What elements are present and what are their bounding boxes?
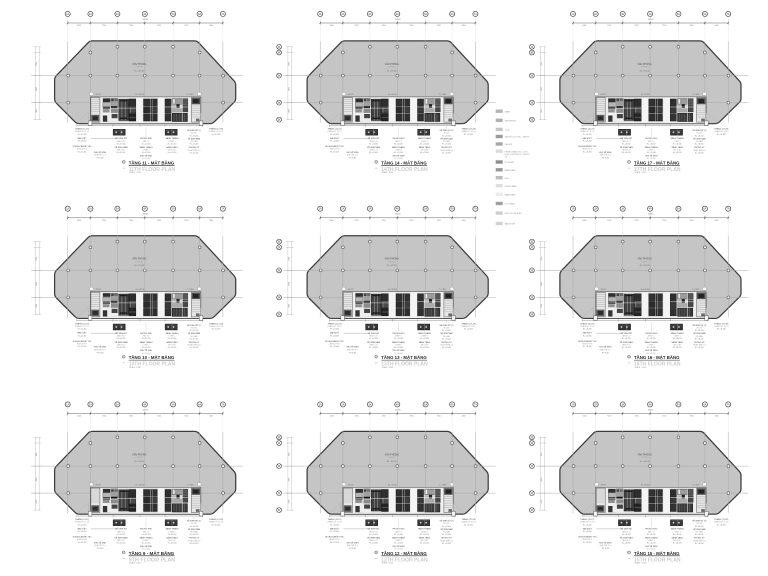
svg-text:TẦNG 9-17: TẦNG 9-17 [622,530,631,533]
svg-text:7200: 7200 [354,25,358,27]
svg-text:PV TL4N: PV TL4N [602,352,610,354]
svg-text:06: 06 [375,162,377,164]
svg-text:SẢNH THANG: SẢNH THANG [165,332,179,335]
svg-text:5A: 5A [677,208,680,211]
svg-text:ANGICOP W: ANGICOP W [330,148,340,151]
svg-text:EL +41.450: EL +41.450 [583,151,592,153]
svg-text:01: 01 [123,552,125,554]
svg-text:EL +41.050: EL +41.050 [190,526,199,528]
svg-text:1A: 1A [66,208,69,211]
svg-text:EL +41.450: EL +41.450 [717,329,726,331]
svg-text:7200: 7200 [437,25,441,27]
svg-text:(THANG KT 15-17): (THANG KT 15-17) [209,521,224,524]
svg-text:5400: 5400 [715,220,719,222]
svg-text:2A: 2A [89,13,92,16]
svg-text:6A: 6A [703,403,706,406]
svg-text:EL +41.450: EL +41.450 [78,329,87,331]
svg-text:(THANG KT 15-17): (THANG KT 15-17) [714,325,729,328]
svg-text:5400: 5400 [209,25,213,27]
svg-text:VỆ SINH NAM: VỆ SINH NAM [114,537,127,540]
svg-text:5A: 5A [424,208,427,211]
svg-text:ANGICOP W: ANGICOP W [330,538,340,541]
svg-text:THANG (15-27): THANG (15-27) [75,322,89,325]
svg-text:9000: 9000 [36,87,38,91]
svg-text:THUẬT ĐIỆN 4-5: THUẬT ĐIỆN 4-5 [440,539,453,542]
svg-text:35 4750: 35 4750 [390,124,396,126]
svg-text:EL +41.450: EL +41.450 [212,134,221,136]
svg-text:TẦNG 9-17: TẦNG 9-17 [622,140,631,143]
svg-text:SẢNH THANG: SẢNH THANG [671,137,685,140]
svg-text:+39.475: +39.475 [347,94,353,96]
svg-text:EL +41.050: EL +41.050 [369,543,378,545]
svg-text:EL +41.050: EL +41.050 [394,338,403,340]
svg-text:EL +41.450: EL +41.450 [78,134,87,136]
svg-text:03: 03 [123,162,125,164]
svg-text:EL +41.050: EL +41.050 [190,543,199,545]
svg-text:PHÒNG KỸ: PHÒNG KỸ [441,341,452,344]
svg-text:SCALE : 1/100: SCALE : 1/100 [129,171,140,174]
svg-text:7200: 7200 [157,220,161,222]
svg-text:MÁY T.2: MÁY T.2 [395,335,401,338]
svg-text:7200: 7200 [409,416,413,418]
svg-text:5400: 5400 [77,220,81,222]
svg-text:2A: 2A [341,403,344,406]
svg-text:09: 09 [628,162,630,164]
svg-text:T +7 SEC: T +7 SEC [439,289,447,291]
svg-text:7200: 7200 [607,25,611,27]
svg-text:KHU VỰC VỆ SINH: KHU VỰC VỆ SINH [505,212,522,215]
svg-text:4A: 4A [649,208,652,211]
svg-text:7000: 7000 [288,257,290,261]
svg-text:EL +41.050: EL +41.050 [369,347,378,349]
svg-text:18 KHU/CANXET TEC: 18 KHU/CANXET TEC [325,145,345,148]
svg-text:5A: 5A [677,403,680,406]
svg-text:3A: 3A [116,403,119,406]
svg-text:( OFFICE ): ( OFFICE ) [641,262,649,264]
svg-text:6A: 6A [451,208,454,211]
svg-text:EL +41.450: EL +41.450 [717,134,726,136]
svg-text:EL +41.050: EL +41.050 [622,152,631,154]
svg-text:9000: 9000 [541,282,543,286]
svg-text:THANG (17-28): THANG (17-28) [714,518,728,521]
svg-text:7200: 7200 [157,25,161,27]
svg-text:5400: 5400 [715,25,719,27]
svg-text:7200: 7200 [129,416,133,418]
svg-text:5400: 5400 [77,416,81,418]
svg-text:EL +41.050: EL +41.050 [190,534,199,536]
svg-text:( OFFICE ): ( OFFICE ) [388,67,396,69]
svg-text:05: 05 [375,356,377,358]
svg-text:7A: 7A [727,13,730,16]
svg-text:7200: 7200 [382,220,386,222]
svg-text:56000: 56000 [648,409,654,411]
svg-text:MÁY T.2: MÁY T.2 [648,335,654,338]
svg-text:VỆ SINH NỮ: VỆ SINH NỮ [368,528,380,531]
svg-text:1A: 1A [572,13,575,16]
svg-text:NHÀ TRẺ TL 4: NHÀ TRẺ TL 4 [347,544,358,547]
svg-text:THANG (17-28): THANG (17-28) [209,518,223,521]
svg-text:EL +41.450: EL +41.450 [583,542,592,544]
svg-text:1A: 1A [572,208,575,211]
svg-text:7200: 7200 [129,220,133,222]
svg-text:04: 04 [375,552,377,554]
svg-text:MÁI SLÉT: MÁI SLÉT [330,527,340,530]
svg-text:EL +41.450: EL +41.450 [464,329,473,331]
svg-text:7200: 7200 [184,25,188,27]
svg-text:EL +41.450: EL +41.450 [330,134,339,136]
svg-text:KHO: KHO [505,178,510,180]
svg-text:7A: 7A [474,13,477,16]
svg-text:EL +41.050: EL +41.050 [394,534,403,536]
svg-text:KHU VỆ SINH: KHU VỆ SINH [94,541,107,544]
svg-text:MÁI SLÉT: MÁI SLÉT [77,527,87,530]
svg-text:EL +41.050: EL +41.050 [420,152,429,154]
svg-text:7A: 7A [221,403,224,406]
svg-text:35 4750: 35 4750 [642,318,648,320]
svg-text:TẦNG 13 - MẶT BẰNG: TẦNG 13 - MẶT BẰNG [381,353,427,360]
svg-text:EL +41.050: EL +41.050 [117,543,126,545]
svg-text:EL +41.050: EL +41.050 [142,347,151,349]
svg-text:SẢNH TẦNG: SẢNH TẦNG [166,146,178,149]
svg-text:EL +41.050: EL +41.050 [695,135,704,137]
svg-text:35 4750: 35 4750 [137,514,143,516]
svg-text:NHÀ TRẺ TL 4: NHÀ TRẺ TL 4 [600,544,611,547]
svg-text:TẦNG 10 - MẶT BẰNG: TẦNG 10 - MẶT BẰNG [129,353,175,360]
svg-text:PHÒNG KHU: PHÒNG KHU [392,332,405,335]
svg-text:1A: 1A [319,208,322,211]
svg-text:EL +44.450: EL +44.450 [583,531,592,533]
svg-text:EL +41.050: EL +41.050 [117,143,126,145]
svg-text:EL +41.450: EL +41.450 [330,329,339,331]
svg-text:7000: 7000 [288,453,290,457]
svg-text:ANGICOP W: ANGICOP W [77,343,87,346]
svg-text:5400: 5400 [582,416,586,418]
svg-text:(THANG KT 15-17): (THANG KT 15-17) [461,521,476,524]
svg-text:7200: 7200 [409,220,413,222]
svg-text:EL +41.050: EL +41.050 [142,534,151,536]
svg-text:9000: 9000 [36,282,38,286]
svg-text:7000: 7000 [36,62,38,66]
svg-text:KHÔNG GIAN CHỜ - CHỖ: KHÔNG GIAN CHỜ - CHỖ [505,150,528,153]
svg-text:SCALE : 1/100: SCALE : 1/100 [635,366,646,369]
svg-text:SẢNH THANG: SẢNH THANG [645,146,659,149]
svg-text:KHU VỆ SINH: KHU VỆ SINH [599,541,612,544]
svg-text:PHÒNG KHU: PHÒNG KHU [392,137,405,140]
svg-text:PV TL4N: PV TL4N [97,352,105,354]
svg-text:KHU VỆ SINH: KHU VỆ SINH [346,541,359,544]
svg-text:EL +41.050: EL +41.050 [673,347,682,349]
svg-text:TẦNG 9-17: TẦNG 9-17 [117,539,126,542]
svg-text:EL +41.450: EL +41.450 [330,542,339,544]
svg-text:EL +41.050: EL +41.050 [168,152,177,154]
svg-text:THANG (15-27): THANG (15-27) [580,518,594,521]
svg-text:VỆ SINH NAM: VỆ SINH NAM [693,332,706,335]
svg-text:18 KHU/CANXET TEC: 18 KHU/CANXET TEC [72,536,92,539]
svg-text:NHÀ TRẺ TL 4: NHÀ TRẺ TL 4 [94,154,105,157]
svg-text:EL +39.100: EL +39.100 [388,485,397,487]
svg-text:2A: 2A [594,13,597,16]
svg-text:( OFFICE ): ( OFFICE ) [135,67,143,69]
svg-text:WC.NAM: WC.NAM [443,140,451,143]
svg-text:EL +41.450: EL +41.450 [78,151,87,153]
svg-text:EL +39.100: EL +39.100 [387,265,397,267]
svg-text:2A: 2A [341,208,344,211]
svg-text:3A: 3A [621,403,624,406]
svg-text:THANG (17-28): THANG (17-28) [461,518,475,521]
svg-text:EL +41.050: EL +41.050 [420,543,429,545]
svg-text:SẢNH THANG: SẢNH THANG [165,137,179,140]
svg-text:56000: 56000 [648,19,654,21]
svg-text:7000: 7000 [288,62,290,66]
svg-text:6A: 6A [198,208,201,211]
svg-text:(THANG KT 15-17): (THANG KT 15-17) [209,130,224,133]
svg-text:EL +41.450: EL +41.450 [78,542,87,544]
svg-text:EL +41.450: EL +41.450 [212,524,221,526]
svg-text:NHÀ TRẺ TL 4: NHÀ TRẺ TL 4 [600,154,611,157]
svg-text:EL +41.450: EL +41.450 [330,151,339,153]
svg-text:MÁY T.2: MÁY T.2 [395,140,401,143]
svg-text:TẦNG 15 - MẶT BẰNG: TẦNG 15 - MẶT BẰNG [634,549,680,556]
svg-text:PHÒNG KHU: PHÒNG KHU [140,332,153,335]
svg-text:KHU VỆ SINH: KHU VỆ SINH [645,545,658,548]
svg-text:7200: 7200 [607,220,611,222]
svg-text:ANGICOP W: ANGICOP W [582,148,592,151]
svg-text:T +7 SEC: T +7 SEC [692,289,700,291]
svg-text:VỆ SINH NỮ (T): VỆ SINH NỮ (T) [692,129,706,132]
svg-text:SẢNH TẦNG: SẢNH TẦNG [671,341,683,344]
svg-text:5A: 5A [677,13,680,16]
svg-text:1A: 1A [319,403,322,406]
svg-text:3A: 3A [621,13,624,16]
svg-text:9000: 9000 [288,87,290,91]
svg-text:EL +41.450: EL +41.450 [330,524,339,526]
svg-text:VỆ SINH NAM: VỆ SINH NAM [188,528,201,531]
svg-text:TẦNG 16 - MẶT BẰNG: TẦNG 16 - MẶT BẰNG [634,353,680,360]
svg-text:MÁI SLÉT: MÁI SLÉT [77,137,87,140]
svg-text:MÁY T.2: MÁY T.2 [395,530,401,533]
svg-text:KHU VỆ SINH: KHU VỆ SINH [392,154,405,157]
svg-text:EL +41.050: EL +41.050 [369,534,378,536]
svg-text:EL +41.050: EL +41.050 [695,347,704,349]
svg-text:EL +41.050: EL +41.050 [442,543,451,545]
svg-text:T +7 SEC: T +7 SEC [692,94,700,96]
svg-text:THANG (15-27): THANG (15-27) [75,518,89,521]
svg-text:SẢNH: SẢNH [505,110,511,113]
svg-text:KHU VỆ SINH: KHU VỆ SINH [140,545,153,548]
svg-text:PHÒNG KHU: PHÒNG KHU [645,137,658,140]
svg-text:SCALE : 1/100: SCALE : 1/100 [129,366,140,369]
svg-text:VỆ SINH NỮ (T): VỆ SINH NỮ (T) [439,129,453,132]
svg-text:EL +44.450: EL +44.450 [78,531,87,533]
svg-text:1A: 1A [66,403,69,406]
svg-text:HÀNH LANG: HÀNH LANG [505,169,517,172]
svg-text:7A: 7A [221,13,224,16]
svg-text:EL +41.050: EL +41.050 [673,338,682,340]
svg-text:( OFFICE ): ( OFFICE ) [641,457,649,459]
svg-text:EL +41.050: EL +41.050 [168,543,177,545]
svg-text:3A: 3A [368,208,371,211]
svg-text:7200: 7200 [102,220,106,222]
svg-text:SẢNH THANG: SẢNH THANG [418,137,432,140]
svg-text:7200: 7200 [382,25,386,27]
svg-text:35 4750: 35 4750 [642,514,648,516]
svg-text:HÀNH LANG: HÀNH LANG [505,193,517,196]
svg-text:EL +39.100: EL +39.100 [641,94,650,96]
svg-text:TẦNG 9-17: TẦNG 9-17 [622,539,631,542]
svg-text:PHÒNG KỸ: PHÒNG KỸ [694,341,705,344]
svg-text:EL +44.450: EL +44.450 [583,141,592,143]
svg-text:SCALE : 1/100: SCALE : 1/100 [382,562,393,565]
svg-text:EL +41.050: EL +41.050 [394,543,403,545]
svg-text:EL +41.050: EL +41.050 [394,152,403,154]
svg-text:VỆ SINH NỮ: VỆ SINH NỮ [115,137,127,140]
svg-text:5400: 5400 [77,25,81,27]
svg-text:TẦNG 9-17: TẦNG 9-17 [117,149,126,152]
svg-text:SCALE : 1/100: SCALE : 1/100 [129,562,140,565]
svg-text:+39.475: +39.475 [95,485,101,487]
svg-text:VỆ SINH NAM: VỆ SINH NAM [367,146,380,149]
svg-text:VỆ SINH NAM: VỆ SINH NAM [114,341,127,344]
svg-text:7000: 7000 [288,109,290,113]
svg-text:TẦNG 9-17: TẦNG 9-17 [622,343,631,346]
svg-text:VỆ SINH NỮ (T): VỆ SINH NỮ (T) [439,324,453,327]
svg-text:EL +44.450: EL +44.450 [330,531,339,533]
svg-text:EL +39.100: EL +39.100 [387,70,397,72]
svg-text:EL +41.050: EL +41.050 [168,347,177,349]
svg-text:NHÀ TRẺ TL 4: NHÀ TRẺ TL 4 [94,349,105,352]
svg-text:35 4750: 35 4750 [390,318,396,320]
svg-text:TẦNG 9-17: TẦNG 9-17 [117,530,126,533]
svg-text:9000: 9000 [288,282,290,286]
svg-text:SCALE : 1/100: SCALE : 1/100 [635,562,646,565]
svg-text:VĂN PHÒNG: VĂN PHÒNG [132,453,147,456]
svg-text:VĂN PHÒNG: VĂN PHÒNG [385,453,400,456]
svg-text:EL +39.100: EL +39.100 [640,461,650,463]
svg-text:EL +41.050: EL +41.050 [647,338,656,340]
svg-text:EL +41.450: EL +41.450 [583,346,592,348]
svg-text:4A: 4A [143,13,146,16]
svg-text:5400: 5400 [209,416,213,418]
svg-text:THANG (15-27): THANG (15-27) [580,322,594,325]
svg-text:VỆ SINH NAM: VỆ SINH NAM [367,537,380,540]
svg-text:7200: 7200 [662,25,666,27]
svg-text:2A: 2A [89,403,92,406]
svg-text:5400: 5400 [462,220,466,222]
svg-text:EL +41.050: EL +41.050 [394,143,403,145]
svg-text:4A: 4A [143,208,146,211]
svg-text:THANG (17-28): THANG (17-28) [209,128,223,131]
svg-text:( OFFICE ): ( OFFICE ) [388,457,396,459]
svg-text:EL +41.050: EL +41.050 [622,543,631,545]
svg-text:7200: 7200 [662,416,666,418]
svg-text:WC.NAM: WC.NAM [696,140,704,143]
svg-text:5400: 5400 [462,416,466,418]
svg-text:18 KHU/CANXET TEC: 18 KHU/CANXET TEC [72,145,92,148]
svg-text:5A: 5A [172,208,175,211]
svg-text:SẢNH THANG: SẢNH THANG [418,528,432,531]
svg-text:56000: 56000 [395,19,401,21]
svg-text:TẦNG 9-17: TẦNG 9-17 [369,343,378,346]
svg-text:7000: 7000 [541,500,543,504]
svg-text:EL +41.050: EL +41.050 [622,534,631,536]
svg-text:EL +41.050: EL +41.050 [647,543,656,545]
svg-text:NHÀ TRẺ TL 4: NHÀ TRẺ TL 4 [347,349,358,352]
svg-text:PHÒNG KHU: PHÒNG KHU [645,528,658,531]
svg-text:THUẬT ĐIỆN 4-5: THUẬT ĐIỆN 4-5 [693,149,706,152]
svg-text:PHÒNG KHU: PHÒNG KHU [140,137,153,140]
svg-text:7A: 7A [727,208,730,211]
svg-text:EL +41.050: EL +41.050 [190,347,199,349]
svg-text:WC.NAM: WC.NAM [190,140,198,143]
svg-text:7000: 7000 [541,257,543,261]
svg-text:4A: 4A [649,403,652,406]
svg-text:( OFFICE ): ( OFFICE ) [135,457,143,459]
svg-text:SẢNH TẦNG: SẢNH TẦNG [671,146,683,149]
svg-text:VỆ SINH NAM: VỆ SINH NAM [620,537,633,540]
svg-text:TẦNG 11 - MẶT BẰNG: TẦNG 11 - MẶT BẰNG [129,158,175,165]
svg-text:EL +41.050: EL +41.050 [622,143,631,145]
svg-text:7200: 7200 [184,416,188,418]
svg-text:MÁY T.2: MÁY T.2 [143,335,149,338]
svg-text:SẢNH THANG: SẢNH THANG [139,146,153,149]
svg-text:THANG (17-28): THANG (17-28) [714,322,728,325]
svg-text:EL +39.100: EL +39.100 [136,289,145,291]
svg-text:VỆ SINH NỮ (T): VỆ SINH NỮ (T) [692,324,706,327]
svg-text:SẢNH THANG: SẢNH THANG [392,537,406,540]
svg-text:6A: 6A [451,403,454,406]
svg-text:(THANG KT 11-17): (THANG KT 11-17) [327,130,342,133]
svg-text:MÁI SLÉT: MÁI SLÉT [583,527,593,530]
svg-text:7000: 7000 [288,500,290,504]
svg-text:EL +41.450: EL +41.450 [464,134,473,136]
svg-text:WC.NỮ: WC.NỮ [191,522,197,525]
svg-text:EL +41.050: EL +41.050 [190,135,199,137]
svg-text:KHU VỆ SINH: KHU VỆ SINH [94,151,107,154]
svg-text:( OFFICE ): ( OFFICE ) [388,262,396,264]
svg-text:VỆ SINH NAM: VỆ SINH NAM [114,146,127,149]
svg-text:+39.475: +39.475 [347,289,353,291]
svg-text:PHÒNG KHU: PHÒNG KHU [392,528,405,531]
svg-text:7200: 7200 [382,416,386,418]
svg-text:VỆ SINH NỮ: VỆ SINH NỮ [368,137,380,140]
svg-text:EL +39.100: EL +39.100 [640,70,650,72]
svg-text:PHÒNG KỸ: PHÒNG KỸ [189,341,200,344]
svg-text:MÁI SLÉT: MÁI SLÉT [583,137,593,140]
svg-text:WC.NAM: WC.NAM [190,335,198,338]
svg-text:5400: 5400 [209,220,213,222]
svg-text:WC.NỮ: WC.NỮ [696,522,702,525]
svg-text:4A: 4A [396,403,399,406]
svg-text:SẢNH THANG: SẢNH THANG [139,537,153,540]
svg-text:5400: 5400 [462,25,466,27]
svg-text:(THANG KT 11-17): (THANG KT 11-17) [580,130,595,133]
svg-text:VỆ SINH NAM: VỆ SINH NAM [620,146,633,149]
svg-text:WC.NỮ: WC.NỮ [191,327,197,330]
svg-text:ANGICOP W: ANGICOP W [582,538,592,541]
svg-text:PV TL4N: PV TL4N [602,158,610,160]
svg-text:T & B: T & B [505,130,510,132]
svg-text:PV TL4N: PV TL4N [97,548,105,550]
svg-text:56000: 56000 [143,19,149,21]
svg-text:PHÒNG KỸ: PHÒNG KỸ [189,146,200,149]
svg-text:+39.475: +39.475 [347,485,353,487]
svg-text:3A: 3A [116,208,119,211]
svg-text:EL +41.450: EL +41.450 [330,346,339,348]
svg-text:56000: 56000 [395,214,401,216]
svg-text:3A: 3A [368,403,371,406]
svg-text:THANG (15-27): THANG (15-27) [75,128,89,131]
svg-text:EL +41.050: EL +41.050 [420,338,429,340]
